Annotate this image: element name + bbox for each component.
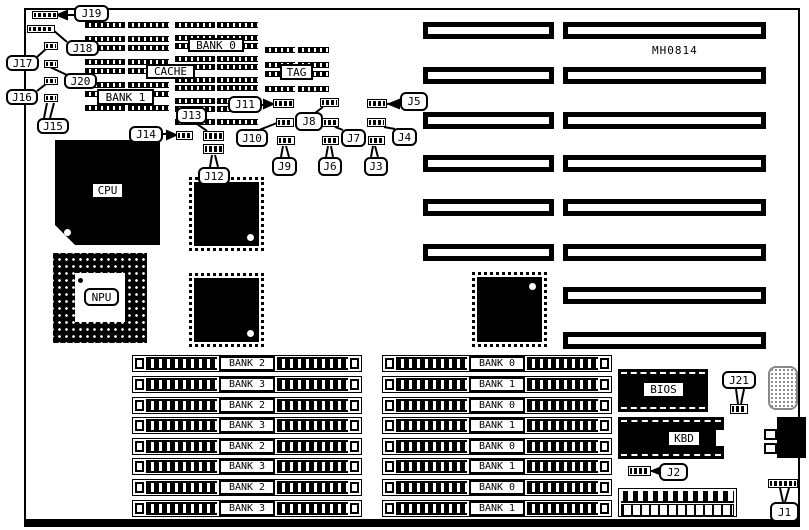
jumper-j14: [176, 131, 193, 140]
jumper-j17: [44, 42, 58, 50]
jumper-label-j13: J13: [176, 107, 207, 124]
jumper-j15: [44, 94, 58, 102]
jumper-label-j2: J2: [659, 463, 688, 481]
jumper-j20: [44, 60, 58, 68]
connector-pin: [764, 429, 777, 440]
jumper-j5: [367, 99, 387, 108]
jumper-label-j7: J7: [341, 129, 366, 147]
jumper-label-j15: J15: [37, 118, 69, 134]
jumper-j3: [368, 136, 385, 145]
jumper-label-j17: J17: [6, 55, 39, 71]
jumper-j21: [730, 404, 748, 414]
jumper-label-j14: J14: [129, 126, 163, 143]
jumper-j9: [277, 136, 295, 145]
jumper-label-j4: J4: [392, 128, 417, 146]
jumper-j4: [367, 118, 386, 127]
jumper-j19: [32, 11, 58, 19]
jumper-label-j9: J9: [272, 157, 297, 176]
jumper-j10: [276, 118, 294, 127]
jumper-label-j18: J18: [66, 40, 99, 56]
pin1-dot: [78, 278, 83, 283]
jumper-label-j8: J8: [295, 112, 323, 131]
jumper-j1: [768, 479, 798, 488]
jumper-label-j20: J20: [64, 73, 97, 89]
connector-pin: [764, 443, 777, 454]
jumper-label-j11: J11: [228, 96, 262, 113]
jumper-j2: [628, 466, 651, 476]
jumper-label-j12: J12: [198, 167, 230, 185]
tag-label: TAG: [280, 64, 313, 80]
jumper-label-j19: J19: [74, 5, 109, 22]
bank0-dip-label: BANK 0: [188, 38, 244, 52]
jumper-j16: [44, 77, 58, 85]
cpu-label: CPU: [92, 183, 123, 198]
jumper-label-j6: J6: [318, 157, 342, 176]
jumper-label-j21: J21: [722, 371, 756, 389]
chip-notch: [716, 430, 725, 446]
jumper-label-j3: J3: [364, 157, 388, 176]
npu-label: NPU: [84, 288, 119, 306]
leader-lines: [0, 0, 809, 530]
bank1-dip-label: BANK 1: [97, 89, 154, 105]
bios-label: BIOS: [642, 381, 685, 398]
cache-label: CACHE: [146, 64, 195, 79]
jumper-label-j1: J1: [770, 502, 799, 522]
jumper-label-j10: J10: [236, 129, 268, 147]
motherboard-diagram: J19 J18 J17 J20 J16 J15 J14 J13 J12 J11 …: [0, 0, 809, 530]
jumper-label-j5: J5: [400, 92, 428, 111]
jumper-j8: [320, 98, 339, 107]
jumper-j7: [322, 118, 339, 127]
jumper-label-j16: J16: [6, 89, 38, 105]
jumper-j18: [27, 25, 55, 33]
jumper-j6: [322, 136, 339, 145]
jumper-j12: [203, 144, 224, 154]
jumper-j11: [273, 99, 294, 108]
kbd-label: KBD: [667, 430, 701, 447]
jumper-j13: [203, 131, 224, 141]
